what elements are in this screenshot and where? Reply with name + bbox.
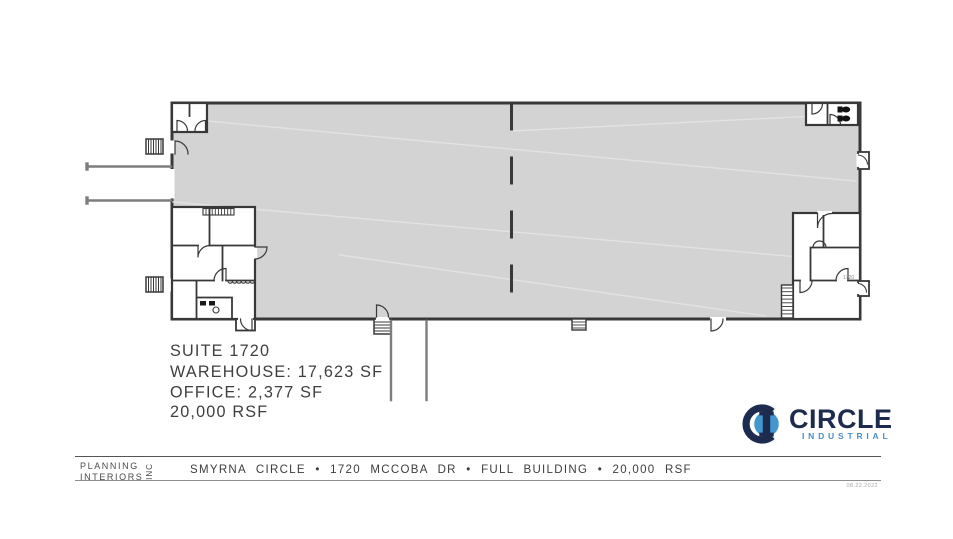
door-tag: 1720 (843, 275, 854, 281)
floor-plan-sheet: 1720 (0, 0, 953, 539)
floor-plan: 1720 (0, 0, 953, 539)
firm-name: PLANNING INTERIORS (80, 461, 143, 482)
stair-hatch (782, 285, 794, 318)
footer-rule-top (75, 456, 881, 457)
firm-line1: PLANNING (80, 461, 143, 472)
suite-label: SUITE 1720 (170, 342, 270, 360)
plan-walls: 1720 (87, 103, 869, 421)
warehouse-label: WAREHOUSE: 17,623 SF (170, 363, 383, 381)
logo-text: CIRCLE INDUSTRIAL (789, 402, 893, 441)
office-label: OFFICE: 2,377 SF (170, 384, 323, 402)
suite-info: SUITE 1720 WAREHOUSE: 17,623 SF OFFICE: … (170, 342, 383, 421)
vestibule-top-left (172, 103, 207, 132)
footer-rule-bottom (75, 480, 881, 481)
date-stamp: 08.22.2022 (818, 483, 878, 489)
brand-logo: CIRCLE INDUSTRIAL (742, 402, 893, 446)
bottom-exit-door (710, 317, 726, 331)
right-wall-door-upper (857, 152, 870, 169)
firm-block: PLANNING INTERIORS INC (80, 461, 158, 482)
bottom-exit-steps-small (572, 319, 586, 330)
circle-industrial-logo-icon (742, 402, 786, 446)
office-block-right: 1720 (782, 211, 870, 319)
logo-subtitle: INDUSTRIAL (789, 431, 893, 441)
project-title: SMYRNA CIRCLE • 1720 MCCOBA DR • FULL BU… (190, 464, 692, 476)
restroom-top-right (806, 103, 858, 125)
rsf-label: 20,000 RSF (170, 403, 268, 421)
firm-suffix: INC (145, 463, 154, 480)
casework-scallops (228, 281, 254, 283)
office-block-left (172, 207, 267, 331)
